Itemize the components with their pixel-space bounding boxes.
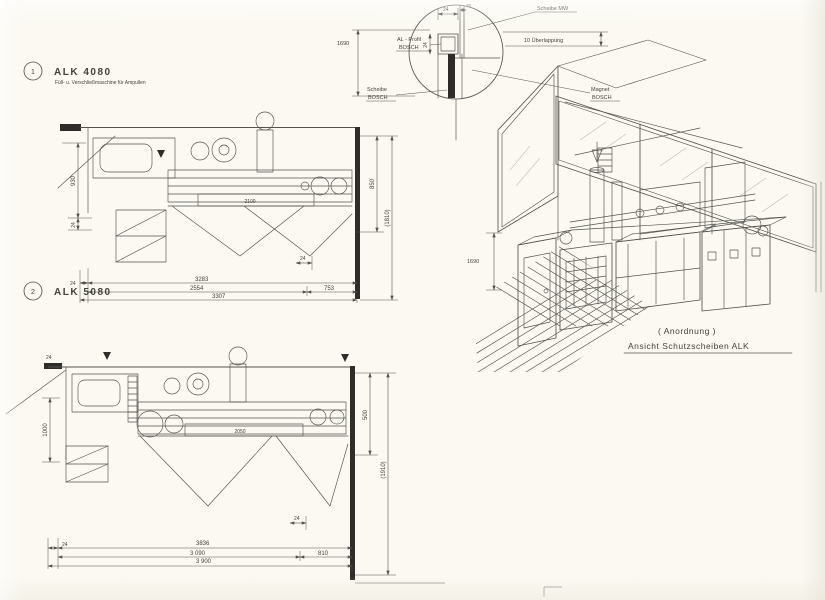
label-al-profil: AL - Profil BOSCH — [396, 37, 441, 51]
svg-text:10 Überlappung: 10 Überlappung — [524, 37, 563, 44]
dim-3900: 3 900 — [196, 559, 212, 565]
dim-850: 850 — [370, 178, 376, 189]
dim-24-chain: 24 — [62, 542, 68, 548]
dim-3090: 3 090 — [190, 551, 206, 557]
wall-stub — [60, 124, 81, 131]
plan-view-alk-4080: 1 ALK 4080 Füll- u. Verschließmaschine f… — [24, 62, 398, 303]
plan1-left-dims: 930 24 — [62, 143, 92, 230]
glass-panels — [498, 40, 821, 292]
detail-section: 24 10 24 1690 AL - Profil BOSCH Scheibe … — [337, 3, 742, 148]
svg-text:AL - Profil: AL - Profil — [397, 37, 421, 43]
dim-24-left: 24 — [71, 222, 77, 228]
detail-leader-to-iso — [565, 102, 742, 148]
machine-length-label: 2100 — [244, 199, 255, 205]
svg-text:24: 24 — [294, 516, 300, 522]
svg-text:Magnet: Magnet — [591, 87, 610, 93]
sheet-artifacts — [544, 587, 562, 597]
svg-text:24: 24 — [423, 42, 429, 48]
work-area-hatch — [168, 206, 352, 256]
dim-3283: 3283 — [195, 277, 209, 283]
detail-top-dims: 24 10 — [438, 3, 472, 20]
technical-drawing: 1 ALK 4080 Füll- u. Verschließmaschine f… — [0, 0, 825, 600]
iso-caption-anordnung: ( Anordnung ) — [658, 326, 716, 336]
svg-text:24: 24 — [443, 7, 449, 13]
sink-unit — [93, 138, 175, 178]
plan1-title: ALK 4080 — [54, 67, 112, 78]
dim-1000: 1000 — [43, 423, 49, 437]
plan-view-alk-5080: 2 ALK 5080 24 — [6, 282, 445, 583]
label-magnet-bosch: Magnet BOSCH — [472, 70, 620, 101]
right-cabinets — [702, 225, 770, 311]
dim-500: 500 — [363, 409, 369, 420]
machine-length-label-2: 2050 — [234, 429, 245, 435]
svg-text:24: 24 — [300, 256, 306, 262]
lower-pane-section — [448, 54, 455, 98]
label-scheibe-mw: Scheibe MW — [468, 6, 577, 30]
iso-height-dim: 1690 — [467, 233, 502, 290]
leader-diagonal-2 — [6, 370, 66, 414]
dim-24-tick: 24 — [296, 256, 312, 270]
flow-arrow-icon-3 — [341, 354, 349, 362]
label-ueberlappung: 10 Überlappung — [503, 32, 608, 46]
plan1-right-dims: 850 (1810) — [355, 136, 398, 300]
cabinet-handle — [544, 289, 548, 293]
leader-diagonal — [58, 136, 115, 188]
flow-arrow-icon — [157, 150, 165, 158]
svg-text:10: 10 — [466, 3, 472, 8]
balloon-1-number: 1 — [31, 69, 35, 76]
plan1-subtitle: Füll- u. Verschließmaschine für Ampullen — [55, 80, 146, 86]
dim-1810: (1810) — [385, 209, 391, 226]
detail-circle — [409, 5, 503, 99]
svg-text:BOSCH: BOSCH — [368, 95, 388, 101]
plan1-dimension-chain: 24 3283 2554 753 3307 — [70, 268, 357, 303]
dim-24-tick-2: 24 — [290, 516, 306, 530]
machine-alk5080: 2050 — [137, 347, 346, 437]
dim-1690-detail: 1690 — [337, 41, 349, 47]
dim-1910: (1910) — [381, 461, 387, 478]
flow-arrow-icon-2 — [103, 352, 111, 360]
line-equipment — [560, 128, 768, 244]
iso-caption-title: Ansicht Schutzscheiben ALK — [628, 341, 749, 351]
dim-3307: 3307 — [212, 294, 226, 300]
plan2-left-dims: 1000 — [42, 398, 60, 462]
isometric-view: 1690 ( Anordnung ) Ansicht Schutzscheibe… — [420, 40, 821, 372]
dim-930: 930 — [71, 175, 77, 186]
wall-stub-2 — [44, 363, 62, 369]
dim-24-top: 24 — [46, 355, 52, 361]
sink-unit-2 — [72, 374, 138, 422]
dim-810: 810 — [318, 551, 329, 557]
work-area-hatch-2 — [138, 436, 348, 506]
back-glass-panel — [558, 40, 706, 88]
svg-text:Scheibe MW: Scheibe MW — [537, 6, 569, 12]
side-cabinets — [116, 210, 166, 262]
dim-3836: 3836 — [196, 541, 210, 547]
svg-text:Scheibe: Scheibe — [367, 87, 387, 93]
svg-text:BOSCH: BOSCH — [399, 45, 419, 51]
side-cabinets-2 — [66, 446, 108, 482]
dim-1690-iso: 1690 — [467, 259, 479, 265]
svg-text:BOSCH: BOSCH — [592, 95, 612, 101]
machine-alk4080: 2100 — [168, 112, 352, 206]
dim-753: 753 — [324, 286, 335, 292]
drawing-sheet: 1 ALK 4080 Füll- u. Verschließmaschine f… — [0, 0, 825, 600]
dim-2554: 2554 — [190, 286, 204, 292]
right-wall — [355, 127, 360, 299]
plan2-title: ALK 5080 — [54, 287, 112, 298]
plan2-right-dims: 500 (1910) — [355, 373, 396, 575]
plan2-dimension-chain: 24 3836 3 090 810 3 900 — [48, 538, 445, 583]
balloon-2-number: 2 — [31, 289, 35, 296]
